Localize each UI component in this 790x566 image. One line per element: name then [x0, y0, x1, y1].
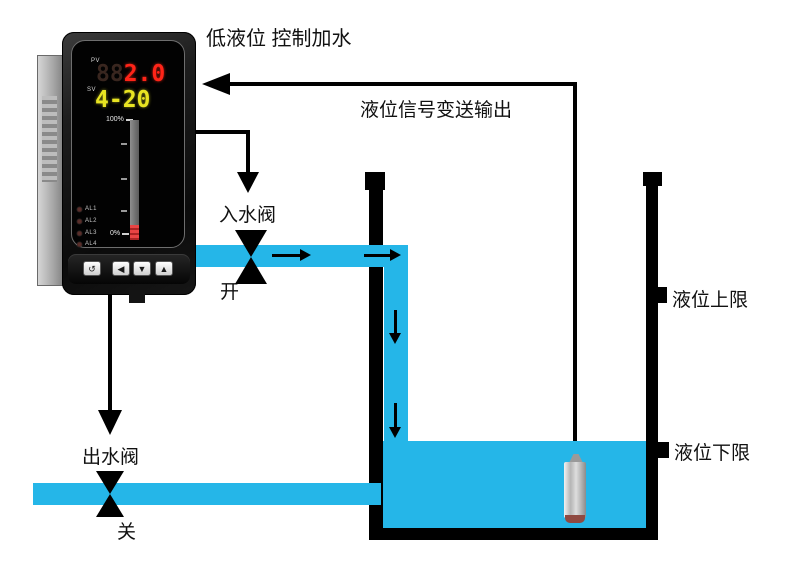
alarm-row: AL4 [77, 241, 97, 247]
sensor-cable [573, 82, 577, 458]
alarm-row: AL3 [77, 230, 97, 236]
pv-display: 882.0 [96, 63, 165, 86]
al4-led-icon [77, 242, 82, 247]
tank-left-wall-cap [365, 172, 385, 190]
outlet-control-line [108, 292, 112, 412]
outlet-pipe [33, 483, 381, 505]
flow-arrow-right-icon [390, 249, 401, 261]
diagram-title: 低液位 控制加水 [206, 22, 352, 51]
flow-arrow-right-icon [300, 249, 311, 261]
level-sensor-probe [564, 462, 586, 518]
outlet-arrow-down-icon [98, 410, 122, 435]
down-button[interactable]: ▼ [133, 261, 151, 276]
set-button[interactable]: ↺ [83, 261, 101, 276]
outlet-valve-label: 出水阀 [82, 442, 139, 469]
al2-led-icon [77, 219, 82, 224]
sv-value: 4-20 [95, 87, 150, 113]
level-sensor-tip [565, 515, 585, 523]
flow-arrow-right-line [364, 254, 390, 257]
signal-output-label: 液位信号变送输出 [360, 95, 512, 122]
tank-right-wall-cap [643, 172, 662, 186]
controller-front-panel: PV 882.0 SV 4-20 100% 0% AL1 AL2 AL3 AL4… [62, 32, 196, 295]
signal-wire-horizontal [226, 82, 577, 86]
alarm-row: AL2 [77, 218, 97, 224]
bargraph-100-label: 100% [106, 116, 133, 123]
signal-arrow-left-icon [202, 73, 230, 95]
bargraph-100-text: 100% [106, 116, 124, 123]
upper-limit-label: 液位上限 [672, 285, 748, 312]
tank-bottom [369, 527, 658, 540]
control-line-vertical [246, 130, 250, 174]
bargraph-0-tick [122, 233, 129, 235]
lower-limit-marker [652, 442, 669, 458]
inlet-valve-icon [235, 230, 267, 257]
control-arrow-down-icon [237, 172, 259, 193]
left-button[interactable]: ◀ [112, 261, 130, 276]
al1-led-icon [77, 207, 82, 212]
flow-arrow-down-line [394, 403, 397, 428]
bargraph-0-label: 0% [110, 230, 129, 237]
bargraph-fill [130, 225, 139, 240]
alarm-row: AL1 [77, 206, 97, 212]
sv-display: 4-20 [95, 89, 150, 112]
bargraph-0-text: 0% [110, 230, 120, 237]
bargraph-tick [121, 178, 127, 180]
flow-arrow-down-line [394, 310, 397, 334]
up-button[interactable]: ▲ [155, 261, 173, 276]
flow-arrow-down-icon [389, 333, 401, 344]
bargraph-tick [121, 210, 127, 212]
bargraph [130, 120, 139, 240]
al3-led-icon [77, 231, 82, 236]
control-line-horizontal [196, 130, 250, 134]
outlet-valve-icon [96, 471, 124, 494]
tank-water [383, 441, 646, 528]
tank-right-wall [646, 172, 658, 540]
flow-arrow-down-icon [389, 427, 401, 438]
diagram-canvas: PV 882.0 SV 4-20 100% 0% AL1 AL2 AL3 AL4… [0, 0, 790, 566]
al1-label: AL1 [85, 206, 97, 212]
outlet-valve-icon [96, 494, 124, 517]
al4-label: AL4 [85, 241, 97, 247]
flow-arrow-right-line [272, 254, 300, 257]
inlet-valve-label: 入水阀 [219, 200, 276, 227]
pv-value: 2.0 [124, 61, 166, 87]
controller-mount-tab [129, 290, 145, 303]
lower-limit-label: 液位下限 [674, 438, 750, 465]
inlet-valve-icon [235, 257, 267, 284]
bargraph-tick [121, 143, 127, 145]
outlet-valve-state: 关 [117, 517, 136, 544]
al3-label: AL3 [85, 230, 97, 236]
pv-ghost-digits: 88 [96, 61, 124, 87]
upper-limit-marker [650, 287, 667, 303]
al2-label: AL2 [85, 218, 97, 224]
level-controller: PV 882.0 SV 4-20 100% 0% AL1 AL2 AL3 AL4… [35, 28, 197, 296]
controller-button-bar: ↺ ◀ ▼ ▲ [68, 254, 190, 284]
controller-vents-icon [42, 96, 57, 182]
